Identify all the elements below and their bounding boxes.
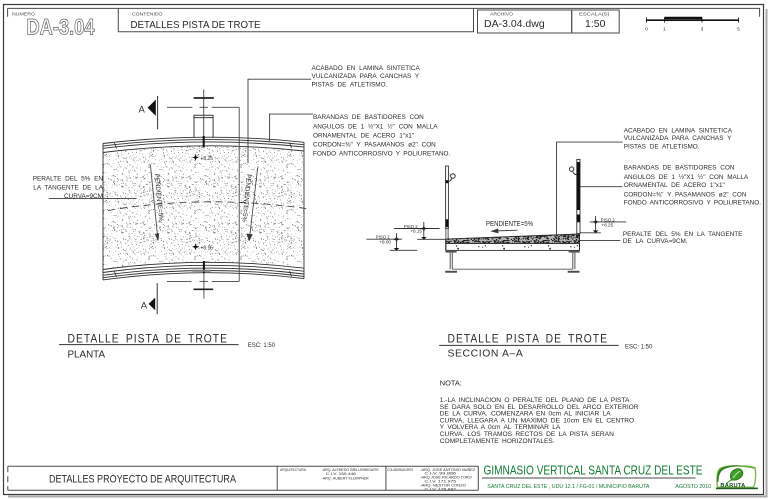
svg-text:ESC: 1:50: ESC: 1:50	[248, 343, 276, 349]
svg-text:FONDO ANTICORROSIVO Y POLIURET: FONDO ANTICORROSIVO Y POLIURETANO.	[624, 200, 762, 207]
svg-text:GIMNASIO VERTICAL SANTA CRUZ: GIMNASIO VERTICAL SANTA CRUZ DEL ESTE	[484, 462, 703, 477]
svg-text:ARQUITECTURA: ARQUITECTURA	[280, 467, 306, 472]
svg-text:ORNAMENTAL DE ACERO 1"x1": ORNAMENTAL DE ACERO 1"x1"	[313, 133, 414, 140]
svg-text:PENDIENTE=5%: PENDIENTE=5%	[486, 221, 533, 228]
svg-text:+8.00: +8.00	[379, 239, 391, 244]
svg-text:0: 0	[645, 27, 648, 33]
svg-text:+8.15: +8.15	[201, 245, 214, 251]
svg-text:1:50: 1:50	[585, 18, 606, 30]
svg-text:5: 5	[737, 27, 740, 33]
svg-text:NOTA:: NOTA:	[440, 379, 462, 388]
svg-text:DE LA CURVA=9CM.: DE LA CURVA=9CM.	[623, 238, 688, 245]
svg-text:1: 1	[663, 27, 666, 33]
svg-text:ESC: 1:50: ESC: 1:50	[625, 345, 653, 351]
svg-text:CONTENIDO: CONTENIDO	[132, 12, 163, 17]
svg-text:DETALLE PISTA DE TROTE: DETALLE PISTA DE TROTE	[448, 331, 609, 345]
svg-text:-ARQ. HUBERT KLUMPNER: -ARQ. HUBERT KLUMPNER	[322, 475, 369, 480]
svg-text:PERALTE DEL 5% EN LA TANGENTE: PERALTE DEL 5% EN LA TANGENTE	[623, 231, 743, 238]
svg-text:ARCHIVO: ARCHIVO	[490, 12, 513, 17]
svg-text:PISTAS DE ATLETISMO.: PISTAS DE ATLETISMO.	[624, 144, 700, 151]
svg-text:ESCALA(S): ESCALA(S)	[579, 12, 610, 17]
svg-text:VULCANIZADA PARA CANCHAS Y: VULCANIZADA PARA CANCHAS Y	[624, 135, 732, 142]
svg-text:SANTA CRUZ DEL ESTE , UDU 12.1: SANTA CRUZ DEL ESTE , UDU 12.1 / FG-01 /…	[487, 484, 650, 490]
svg-text:FONDO ANTICORROSIVO Y POLIURET: FONDO ANTICORROSIVO Y POLIURETANO.	[313, 151, 451, 158]
svg-text:COMPLETAMENTE HORIZONTALES.: COMPLETAMENTE HORIZONTALES.	[440, 438, 555, 445]
svg-text:ANGULOS DE 1 ½"X1 ½" CON MALLA: ANGULOS DE 1 ½"X1 ½" CON MALLA	[313, 123, 438, 131]
svg-text:+8.25: +8.25	[602, 222, 614, 227]
svg-text:PERALTE DEL 5% EN: PERALTE DEL 5% EN	[33, 176, 104, 183]
svg-text:SECCION A–A: SECCION A–A	[448, 349, 524, 360]
svg-text:BARANDAS DE BASTIDORES CON: BARANDAS DE BASTIDORES CON	[624, 165, 735, 172]
svg-text:COLABORADORES: COLABORADORES	[387, 467, 413, 472]
svg-text:AGOSTO 2010: AGOSTO 2010	[675, 484, 711, 490]
svg-text:ACABADO EN LAMINA SINTETICA: ACABADO EN LAMINA SINTETICA	[624, 127, 733, 134]
svg-text:LA TANGENTE DE LA: LA TANGENTE DE LA	[33, 185, 103, 192]
svg-text:CORDON=⅜" Y PASAMANOS ø2" CON: CORDON=⅜" Y PASAMANOS ø2" CON	[313, 141, 436, 148]
svg-text:BARANDAS DE BASTIDORES CON: BARANDAS DE BASTIDORES CON	[313, 114, 424, 121]
svg-text:DETALLES PISTA DE TROTE: DETALLES PISTA DE TROTE	[131, 19, 261, 31]
svg-text:ORNAMENTAL DE ACERO 1"x1": ORNAMENTAL DE ACERO 1"x1"	[624, 182, 725, 189]
svg-text:DA-3.04.dwg: DA-3.04.dwg	[484, 18, 545, 30]
svg-text:ANGULOS DE 1 ½"X1 ½" CON MALLA: ANGULOS DE 1 ½"X1 ½" CON MALLA	[624, 173, 749, 181]
svg-text:CORDON=⅜" Y PASAMANOS ø2" CON: CORDON=⅜" Y PASAMANOS ø2" CON	[624, 191, 747, 198]
svg-text:DA-3.04: DA-3.04	[27, 15, 95, 40]
svg-text:ACABADO EN LAMINA SINTETICA: ACABADO EN LAMINA SINTETICA	[312, 65, 421, 72]
svg-text:DETALLES PROYECTO DE ARQUITECT: DETALLES PROYECTO DE ARQUITECTURA	[49, 473, 237, 485]
svg-text:+8.25: +8.25	[201, 156, 214, 162]
svg-text:PISTAS DE ATLETISMO.: PISTAS DE ATLETISMO.	[312, 82, 388, 89]
svg-text:A: A	[141, 301, 148, 312]
svg-text:CURVA=9CM: CURVA=9CM	[64, 193, 103, 200]
svg-text:+8.15: +8.15	[410, 228, 422, 233]
svg-text:PLANTA: PLANTA	[68, 349, 106, 360]
svg-text:VULCANIZADA PARA CANCHAS Y: VULCANIZADA PARA CANCHAS Y	[312, 73, 420, 80]
svg-text:A: A	[139, 105, 146, 116]
svg-text:DETALLE PISTA DE TROTE: DETALLE PISTA DE TROTE	[68, 331, 229, 345]
svg-text:3: 3	[701, 27, 704, 33]
svg-text:C.I.V. 175.887: C.I.V. 175.887	[425, 487, 457, 492]
